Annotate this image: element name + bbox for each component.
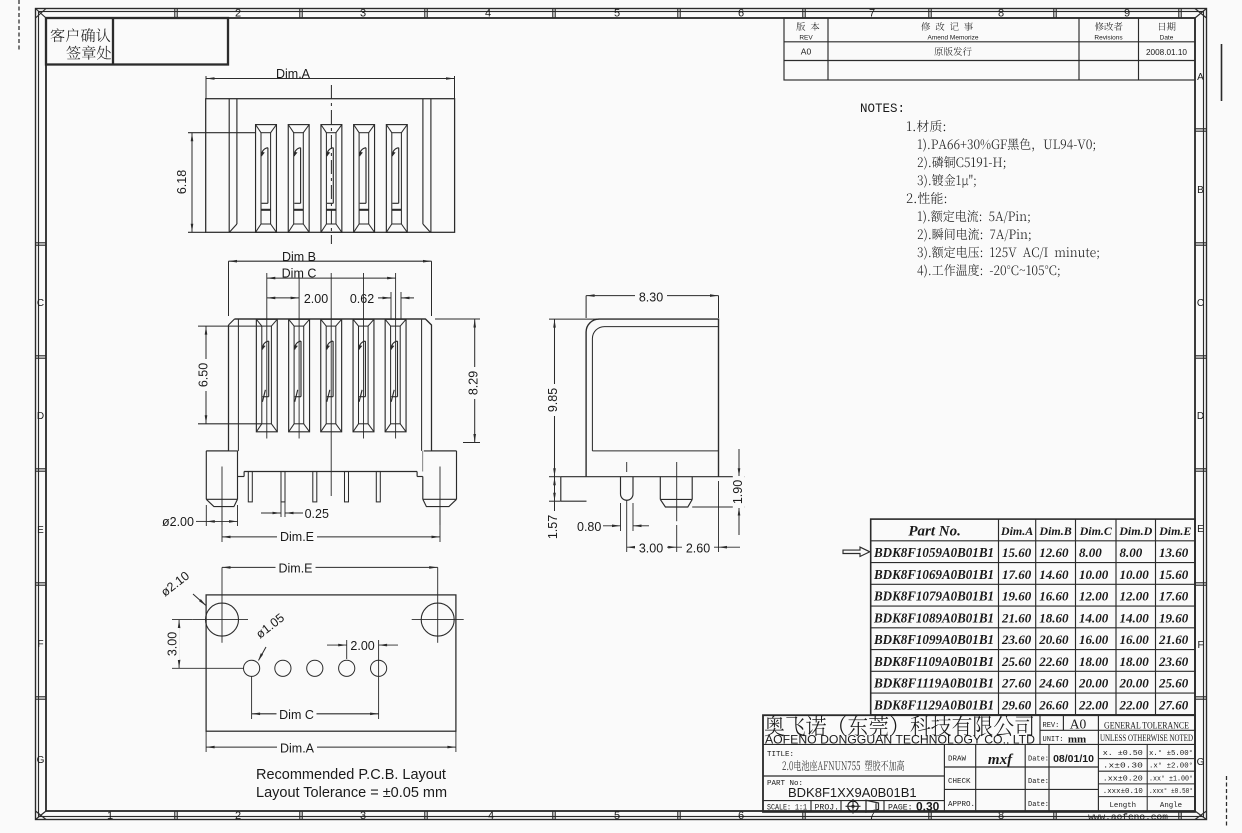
svg-text:5: 5 (614, 8, 620, 20)
svg-text:CHECK: CHECK (948, 778, 971, 786)
svg-text:23.60: 23.60 (1001, 632, 1032, 647)
svg-text:BDK8F1XX9A0B01B1: BDK8F1XX9A0B01B1 (788, 785, 917, 800)
svg-text:.x±0.30: .x±0.30 (1103, 763, 1143, 771)
svg-text:GENERAL TOLERANCE: GENERAL TOLERANCE (1104, 722, 1189, 732)
svg-text:REV:: REV: (1043, 722, 1060, 730)
svg-text:BDK8F1119A0B01B1: BDK8F1119A0B01B1 (873, 676, 994, 691)
svg-text:2.00: 2.00 (304, 292, 328, 306)
svg-text:9.85: 9.85 (546, 388, 560, 412)
svg-text:08/01/10: 08/01/10 (1053, 753, 1094, 765)
svg-text:BDK8F1109A0B01B1: BDK8F1109A0B01B1 (873, 654, 994, 669)
svg-text:8.30: 8.30 (639, 291, 663, 305)
svg-text:PROJ.: PROJ. (815, 804, 840, 813)
svg-text:19.60: 19.60 (1002, 589, 1032, 604)
svg-text:2.00: 2.00 (350, 639, 374, 653)
svg-text:Dim.A: Dim.A (280, 741, 315, 755)
svg-text:16.60: 16.60 (1039, 589, 1069, 604)
svg-text:Part No.: Part No. (908, 524, 961, 540)
svg-text:5: 5 (614, 810, 620, 822)
svg-text:G: G (1197, 757, 1205, 768)
svg-text:A: A (1197, 72, 1204, 83)
svg-text:.xx° ±1.00°: .xx° ±1.00° (1149, 774, 1193, 783)
svg-text:0.80: 0.80 (577, 520, 601, 534)
svg-text:2: 2 (235, 810, 241, 822)
svg-text:29.60: 29.60 (1001, 697, 1032, 712)
svg-text:A0: A0 (1070, 717, 1087, 732)
svg-text:19.60: 19.60 (1159, 610, 1189, 625)
svg-text:ø2.00: ø2.00 (162, 515, 194, 529)
svg-text:3: 3 (360, 810, 366, 822)
svg-text:0.30: 0.30 (916, 800, 940, 814)
svg-text:www.aofeno.com: www.aofeno.com (1088, 812, 1168, 823)
svg-text:UNIT:: UNIT: (1043, 736, 1064, 744)
svg-text:12.00: 12.00 (1120, 589, 1150, 604)
svg-text:NOTES:: NOTES: (860, 102, 905, 116)
svg-text:0.25: 0.25 (305, 507, 329, 521)
svg-text:REV: REV (799, 35, 813, 42)
svg-text:0.62: 0.62 (350, 292, 374, 306)
svg-text:18.00: 18.00 (1079, 654, 1109, 669)
svg-text:17.60: 17.60 (1159, 589, 1189, 604)
svg-text:Length: Length (1109, 802, 1136, 810)
svg-text:BDK8F1069A0B01B1: BDK8F1069A0B01B1 (873, 567, 994, 582)
svg-text:Dim.A: Dim.A (276, 67, 311, 81)
svg-text:10.00: 10.00 (1120, 567, 1150, 582)
svg-text:PAGE:: PAGE: (888, 804, 913, 813)
svg-text:Amend Memorize: Amend Memorize (928, 35, 979, 42)
svg-text:DRAW: DRAW (948, 756, 967, 764)
svg-text:22.60: 22.60 (1038, 654, 1069, 669)
svg-text:23.60: 23.60 (1158, 654, 1189, 669)
svg-text:Dim.E: Dim.E (278, 562, 312, 576)
svg-text:Dim C: Dim C (279, 708, 314, 722)
svg-text:E: E (1197, 524, 1204, 535)
svg-text:18.00: 18.00 (1120, 654, 1150, 669)
svg-text:.x° ±2.00°: .x° ±2.00° (1149, 762, 1193, 771)
svg-text:12.00: 12.00 (1079, 589, 1109, 604)
svg-text:BDK8F1099A0B01B1: BDK8F1099A0B01B1 (873, 632, 994, 647)
svg-text:1.90: 1.90 (731, 480, 745, 504)
svg-text:Dim.A: Dim.A (1000, 524, 1033, 538)
svg-text:BDK8F1129A0B01B1: BDK8F1129A0B01B1 (873, 697, 994, 712)
svg-text:14.60: 14.60 (1039, 567, 1069, 582)
svg-text:Dim.B: Dim.B (1038, 524, 1071, 538)
svg-text:15.60: 15.60 (1002, 545, 1032, 560)
svg-text:20.00: 20.00 (1119, 676, 1150, 691)
svg-text:25.60: 25.60 (1158, 676, 1189, 691)
svg-text:mm: mm (1068, 734, 1086, 746)
svg-text:12.60: 12.60 (1039, 545, 1069, 560)
svg-text:3.00: 3.00 (639, 541, 663, 555)
svg-text:6.50: 6.50 (197, 363, 211, 387)
svg-text:D: D (37, 411, 44, 422)
svg-text:10.00: 10.00 (1079, 567, 1109, 582)
svg-text:Layout Tolerance = ±0.05 mm: Layout Tolerance = ±0.05 mm (256, 785, 447, 801)
svg-text:6: 6 (738, 8, 744, 20)
svg-text:E: E (37, 525, 44, 536)
svg-text:Dim.E: Dim.E (1158, 524, 1191, 538)
svg-text:8.29: 8.29 (467, 371, 481, 395)
svg-text:BDK8F1059A0B01B1: BDK8F1059A0B01B1 (873, 545, 994, 560)
svg-text:8.00: 8.00 (1079, 545, 1102, 560)
svg-text:2: 2 (235, 8, 241, 20)
svg-text:BDK8F1079A0B01B1: BDK8F1079A0B01B1 (873, 589, 994, 604)
svg-text:APPRO.: APPRO. (948, 801, 975, 809)
svg-text:Dim B: Dim B (282, 250, 316, 264)
svg-text:B: B (1197, 185, 1204, 196)
svg-text:6: 6 (738, 810, 744, 822)
svg-text:A0: A0 (801, 47, 812, 57)
svg-text:Date: Date (1160, 35, 1174, 42)
svg-text:C: C (37, 298, 44, 309)
svg-text:22.00: 22.00 (1078, 697, 1109, 712)
svg-text:Dim.E: Dim.E (280, 530, 314, 544)
svg-text:Dim.C: Dim.C (1079, 524, 1113, 538)
svg-text:21.60: 21.60 (1001, 610, 1032, 625)
svg-text:F: F (37, 639, 43, 650)
svg-text:Angle: Angle (1160, 802, 1182, 810)
svg-text:13.60: 13.60 (1159, 545, 1189, 560)
svg-text:22.00: 22.00 (1119, 697, 1150, 712)
svg-text:3: 3 (360, 8, 366, 20)
svg-text:25.60: 25.60 (1001, 654, 1032, 669)
svg-text:26.60: 26.60 (1038, 697, 1069, 712)
svg-text:Date:: Date: (1028, 778, 1049, 786)
svg-text:1.57: 1.57 (546, 515, 560, 539)
svg-text:.xx±0.20: .xx±0.20 (1103, 775, 1143, 783)
svg-text:18.60: 18.60 (1039, 610, 1069, 625)
svg-text:.xxx±0.10: .xxx±0.10 (1103, 788, 1143, 796)
svg-text:Date:: Date: (1028, 756, 1049, 764)
svg-text:2.60: 2.60 (686, 541, 710, 555)
svg-text:D: D (1197, 411, 1204, 422)
svg-text:6.18: 6.18 (175, 170, 189, 194)
svg-text:14.00: 14.00 (1079, 610, 1109, 625)
svg-text:20.00: 20.00 (1078, 676, 1109, 691)
svg-text:16.00: 16.00 (1120, 632, 1150, 647)
svg-text:Dim.D: Dim.D (1118, 524, 1152, 538)
svg-text:4: 4 (485, 8, 491, 20)
svg-text:.xxx° ±0.50°: .xxx° ±0.50° (1149, 787, 1193, 796)
svg-text:G: G (37, 755, 45, 766)
svg-text:SCALE: 1:1: SCALE: 1:1 (767, 804, 807, 813)
svg-text:21.60: 21.60 (1158, 632, 1189, 647)
svg-text:4: 4 (488, 810, 494, 822)
svg-text:x. ±0.50: x. ±0.50 (1103, 750, 1143, 758)
svg-text:27.60: 27.60 (1001, 676, 1032, 691)
svg-text:C: C (1197, 298, 1204, 309)
svg-text:17.60: 17.60 (1002, 567, 1032, 582)
svg-text:14.00: 14.00 (1120, 610, 1150, 625)
svg-text:24.60: 24.60 (1038, 676, 1069, 691)
svg-text:F: F (1197, 640, 1203, 651)
svg-text:Revisions: Revisions (1094, 35, 1123, 42)
svg-text:UNLESS OTHERWISE NOTED: UNLESS OTHERWISE NOTED (1100, 734, 1193, 744)
svg-text:BDK8F1089A0B01B1: BDK8F1089A0B01B1 (873, 610, 994, 625)
svg-text:2008.01.10: 2008.01.10 (1146, 48, 1187, 57)
svg-text:mxf: mxf (988, 752, 1014, 768)
svg-text:20.60: 20.60 (1038, 632, 1069, 647)
svg-text:3.00: 3.00 (166, 632, 180, 656)
svg-text:16.00: 16.00 (1079, 632, 1109, 647)
svg-text:TITLE:: TITLE: (767, 751, 794, 759)
svg-text:Date:: Date: (1028, 801, 1049, 809)
svg-text:27.60: 27.60 (1158, 697, 1189, 712)
svg-text:15.60: 15.60 (1159, 567, 1189, 582)
svg-text:8.00: 8.00 (1120, 545, 1143, 560)
svg-text:x.° ±5.00°: x.° ±5.00° (1149, 749, 1193, 758)
svg-text:Recommended P.C.B. Layout: Recommended P.C.B. Layout (256, 767, 446, 783)
svg-text:1: 1 (107, 810, 113, 822)
